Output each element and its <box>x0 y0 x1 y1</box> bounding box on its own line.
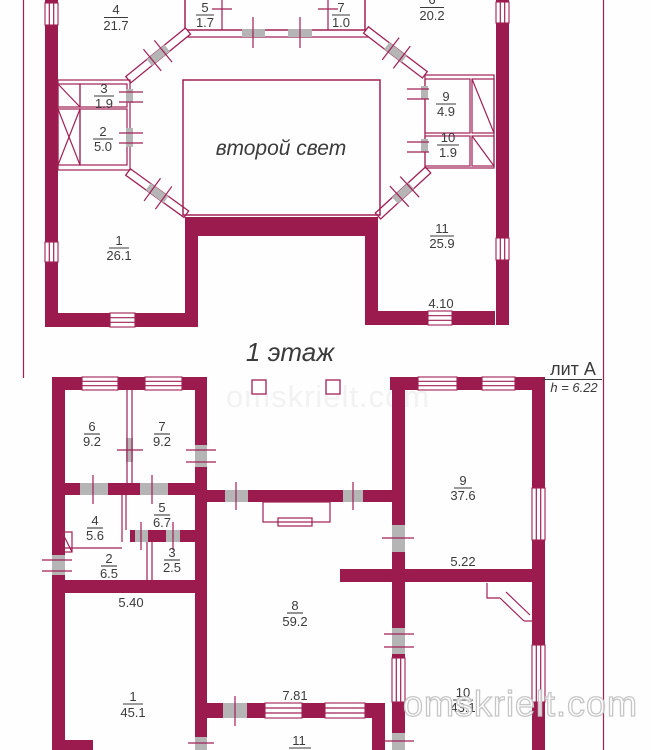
svg-text:9.2: 9.2 <box>83 434 101 449</box>
svg-text:2: 2 <box>105 551 112 566</box>
svg-text:6.7: 6.7 <box>153 515 171 530</box>
svg-text:25.9: 25.9 <box>429 236 454 251</box>
svg-text:4: 4 <box>91 513 98 528</box>
svg-text:9.2: 9.2 <box>153 434 171 449</box>
room-label-9: 9 4.9 <box>436 89 456 119</box>
svg-text:7: 7 <box>337 0 344 15</box>
svg-text:1.9: 1.9 <box>439 145 457 160</box>
dimension-label: 5.40 <box>118 595 143 610</box>
window <box>325 703 365 718</box>
atrium-label: второй свет <box>216 137 346 160</box>
svg-text:5: 5 <box>158 500 165 515</box>
room-label-11: 11 25.9 <box>429 221 454 251</box>
svg-text:1.7: 1.7 <box>196 15 214 30</box>
svg-text:4.9: 4.9 <box>437 104 455 119</box>
room-label-2: 2 5.0 <box>93 124 113 154</box>
door-opening <box>421 86 428 99</box>
floor-plan-drawing: второй свет 4 21.7 5 1.7 7 1.0 6 20.2 <box>0 0 651 750</box>
room-label-6: 6 20.2 <box>419 0 444 23</box>
room-label-5: 5 1.7 <box>196 0 214 30</box>
svg-text:9: 9 <box>459 473 466 488</box>
floor-plan-document: второй свет 4 21.7 5 1.7 7 1.0 6 20.2 <box>0 0 651 750</box>
svg-text:5.6: 5.6 <box>86 528 104 543</box>
svg-text:1: 1 <box>129 689 136 704</box>
svg-text:11: 11 <box>292 733 306 748</box>
room-label-9: 9 37.6 <box>450 473 475 503</box>
window <box>82 377 118 390</box>
svg-text:6.5: 6.5 <box>100 566 118 581</box>
room-label-2: 2 6.5 <box>100 551 118 581</box>
window <box>482 377 515 390</box>
room-label-11: 11 15.6 <box>286 733 311 750</box>
svg-text:8: 8 <box>291 598 298 613</box>
svg-text:3: 3 <box>168 545 175 560</box>
room-label-1: 1 26.1 <box>106 233 131 263</box>
svg-text:2: 2 <box>99 124 106 139</box>
diagonal-wall <box>369 160 438 227</box>
room-label-7: 7 1.0 <box>332 0 350 30</box>
room-label-5: 5 6.7 <box>153 500 171 530</box>
room-label-4: 4 21.7 <box>103 2 128 33</box>
svg-text:1: 1 <box>115 233 122 248</box>
door-opening <box>126 89 133 103</box>
svg-text:26.1: 26.1 <box>106 248 131 263</box>
svg-text:1.9: 1.9 <box>95 96 113 111</box>
floor-title: 1 этаж <box>246 337 335 367</box>
window <box>496 238 509 260</box>
window <box>145 377 182 390</box>
window <box>532 488 545 540</box>
svg-text:3: 3 <box>100 81 107 96</box>
room-label-6: 6 9.2 <box>83 419 101 449</box>
svg-text:1.0: 1.0 <box>332 15 350 30</box>
door-opening <box>80 483 108 495</box>
room-label-1: 1 45.1 <box>120 689 145 720</box>
svg-text:20.2: 20.2 <box>419 8 444 23</box>
dimension-label: 5.22 <box>450 554 475 569</box>
liter-label: лит А <box>550 359 596 379</box>
window <box>496 2 509 23</box>
height-label: h = 6.22 <box>550 380 598 395</box>
corner-structure <box>487 583 533 621</box>
upper-plan: второй свет 4 21.7 5 1.7 7 1.0 6 20.2 <box>24 0 510 378</box>
svg-text:9: 9 <box>442 89 449 104</box>
door-opening <box>421 139 428 152</box>
column <box>326 380 340 394</box>
upper-walls <box>45 0 509 327</box>
window <box>45 3 58 25</box>
window <box>428 311 452 325</box>
window <box>265 703 302 718</box>
door-opening <box>195 445 207 467</box>
svg-text:5: 5 <box>201 0 208 15</box>
stair-symbol <box>263 502 330 526</box>
door-opening <box>126 128 133 147</box>
dimension-label: 4.10 <box>428 296 453 311</box>
room-label-7: 7 9.2 <box>153 419 171 449</box>
svg-text:11: 11 <box>435 221 449 236</box>
svg-text:21.7: 21.7 <box>103 18 128 33</box>
room-label-8: 8 59.2 <box>282 598 307 629</box>
window <box>418 377 457 390</box>
door-opening <box>140 483 168 495</box>
svg-text:6: 6 <box>428 0 435 7</box>
watermark: omskrielt.com <box>403 683 638 724</box>
svg-text:7: 7 <box>158 419 165 434</box>
door-opening <box>392 628 405 654</box>
room-label-4: 4 5.6 <box>86 513 104 543</box>
door-opening <box>52 555 65 575</box>
window <box>110 313 135 327</box>
room-label-10: 10 1.9 <box>437 130 459 160</box>
svg-text:45.1: 45.1 <box>120 705 145 720</box>
svg-text:10: 10 <box>441 130 455 145</box>
svg-text:59.2: 59.2 <box>282 614 307 629</box>
svg-text:4: 4 <box>112 2 119 17</box>
svg-text:2.5: 2.5 <box>163 560 181 575</box>
room-label-3: 3 2.5 <box>163 545 181 575</box>
svg-text:37.6: 37.6 <box>450 488 475 503</box>
svg-text:5.0: 5.0 <box>94 139 112 154</box>
column <box>252 380 266 394</box>
diagonal-wall <box>358 19 434 86</box>
dimension-label: 7.81 <box>282 688 307 703</box>
window <box>45 242 58 262</box>
liter-block: лит А h = 6.22 <box>543 359 602 395</box>
room-label-3: 3 1.9 <box>94 81 114 111</box>
svg-text:6: 6 <box>88 419 95 434</box>
